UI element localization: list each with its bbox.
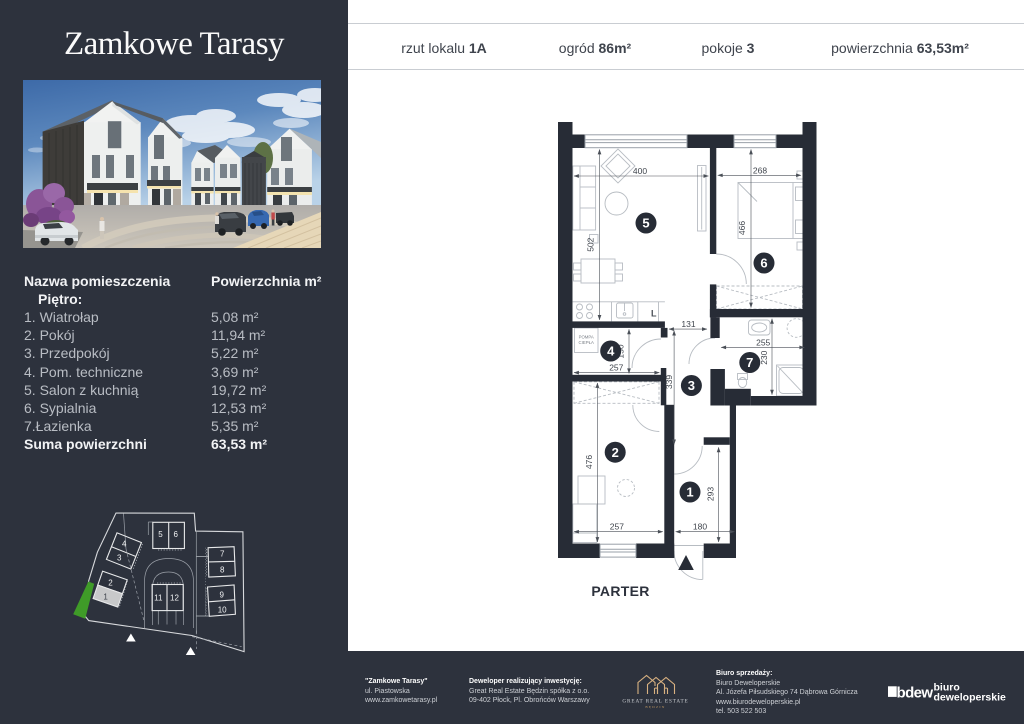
svg-text:257: 257 [609, 363, 623, 373]
svg-text:293: 293 [706, 487, 716, 501]
svg-text:7: 7 [220, 550, 225, 559]
svg-text:400: 400 [633, 166, 647, 176]
svg-text:3: 3 [117, 554, 122, 563]
svg-text:476: 476 [584, 455, 594, 469]
svg-text:bdew: bdew [897, 685, 934, 702]
svg-text:6: 6 [760, 256, 767, 271]
svg-text:131: 131 [681, 319, 695, 329]
svg-text:230: 230 [759, 350, 769, 364]
svg-text:257: 257 [610, 522, 624, 532]
svg-text:11: 11 [154, 594, 163, 603]
svg-text:9: 9 [219, 590, 224, 599]
svg-text:2: 2 [612, 445, 619, 460]
svg-text:268: 268 [753, 165, 767, 175]
svg-text:4: 4 [607, 344, 615, 359]
svg-text:466: 466 [737, 221, 747, 235]
svg-text:L: L [651, 309, 657, 319]
svg-text:BĘDZIN: BĘDZIN [645, 705, 665, 709]
svg-text:8: 8 [220, 565, 225, 574]
svg-text:502: 502 [586, 237, 596, 251]
svg-text:GREAT REAL ESTATE: GREAT REAL ESTATE [622, 699, 688, 705]
svg-text:4: 4 [122, 540, 127, 549]
svg-text:CIEPŁA: CIEPŁA [579, 340, 594, 345]
svg-text:255: 255 [756, 337, 770, 347]
svg-text:2: 2 [108, 578, 113, 587]
svg-text:12: 12 [170, 594, 179, 603]
svg-text:deweloperskie: deweloperskie [934, 692, 1007, 704]
svg-text:5: 5 [158, 530, 163, 539]
svg-text:180: 180 [693, 522, 707, 532]
svg-text:339: 339 [664, 375, 674, 389]
svg-text:7: 7 [746, 355, 753, 370]
svg-text:5: 5 [642, 216, 649, 231]
svg-text:10: 10 [218, 606, 227, 615]
svg-text:1: 1 [103, 592, 108, 601]
svg-text:6: 6 [173, 530, 178, 539]
svg-text:1: 1 [686, 485, 693, 500]
svg-text:POMPA: POMPA [579, 335, 594, 340]
svg-text:3: 3 [688, 378, 695, 393]
